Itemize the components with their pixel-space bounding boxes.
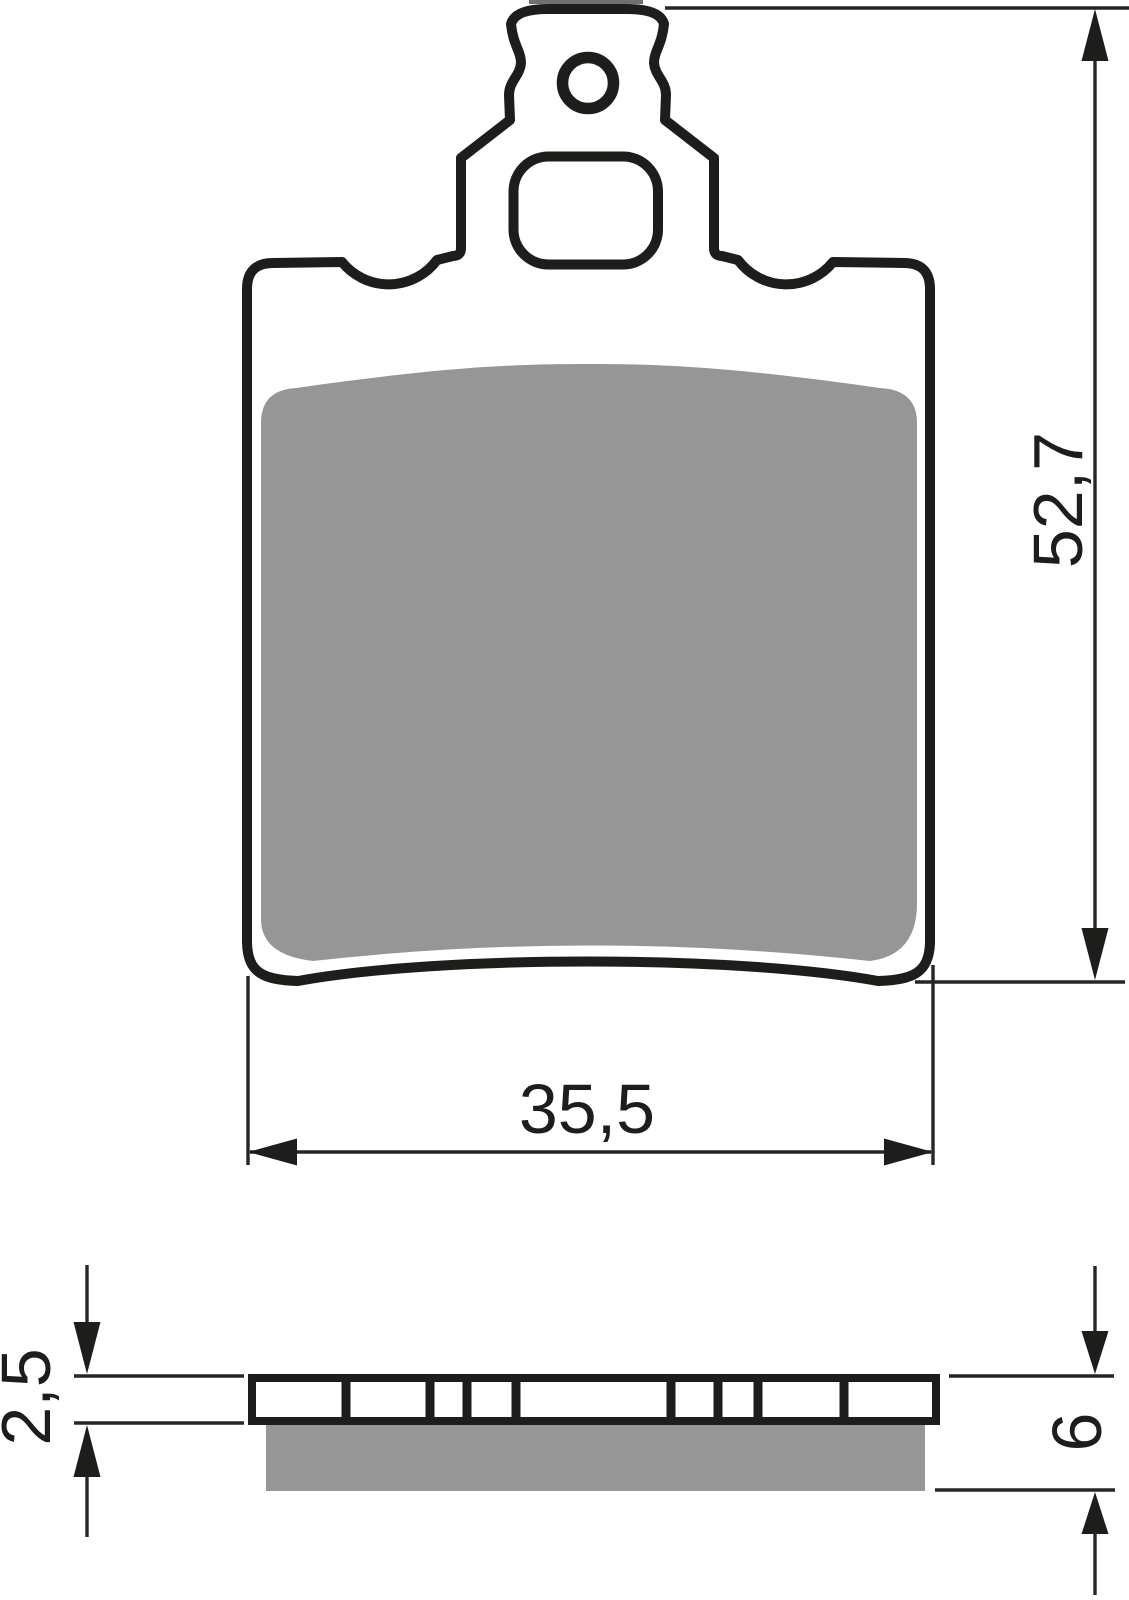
svg-text:6: 6: [1038, 1413, 1116, 1452]
svg-text:52,7: 52,7: [1019, 432, 1097, 568]
svg-text:2,5: 2,5: [0, 1348, 65, 1445]
svg-text:35,5: 35,5: [519, 1070, 655, 1148]
